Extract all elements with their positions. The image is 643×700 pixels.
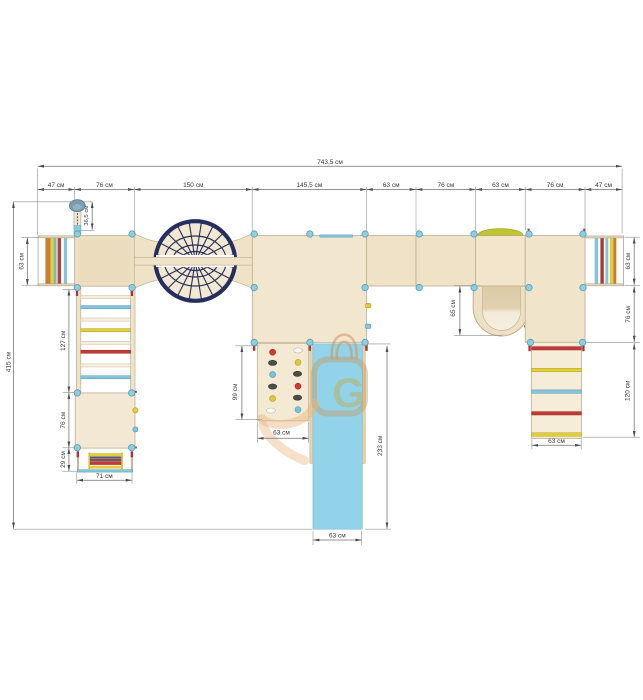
svg-text:63 см: 63 см (19, 252, 26, 269)
svg-text:743,5 см: 743,5 см (317, 159, 343, 166)
svg-text:63 см: 63 см (329, 533, 346, 540)
svg-text:36,5 см: 36,5 см (84, 206, 90, 226)
svg-text:63 см: 63 см (383, 182, 400, 189)
svg-text:63 см: 63 см (492, 182, 509, 189)
svg-text:76 см: 76 см (625, 305, 632, 322)
svg-text:65 см: 65 см (450, 299, 457, 316)
svg-text:99 см: 99 см (232, 383, 239, 400)
svg-text:150 см: 150 см (183, 182, 204, 189)
svg-text:76 см: 76 см (547, 182, 564, 189)
svg-text:G: G (332, 369, 365, 416)
svg-text:76 см: 76 см (96, 182, 113, 189)
svg-text:120 см: 120 см (625, 380, 632, 401)
svg-text:29 см: 29 см (60, 451, 67, 468)
svg-text:233 см: 233 см (377, 435, 384, 456)
svg-text:145,5 см: 145,5 см (296, 182, 322, 189)
svg-text:47 см: 47 см (48, 182, 65, 189)
svg-text:76 см: 76 см (437, 182, 454, 189)
svg-text:71 см: 71 см (96, 473, 113, 480)
svg-text:63 см: 63 см (548, 438, 565, 445)
svg-text:47 см: 47 см (595, 182, 612, 189)
svg-text:63 см: 63 см (625, 252, 632, 269)
svg-text:127 см: 127 см (60, 330, 67, 351)
svg-text:76 см: 76 см (60, 411, 67, 428)
svg-text:415 см: 415 см (6, 351, 13, 372)
svg-text:63 см: 63 см (273, 429, 290, 436)
